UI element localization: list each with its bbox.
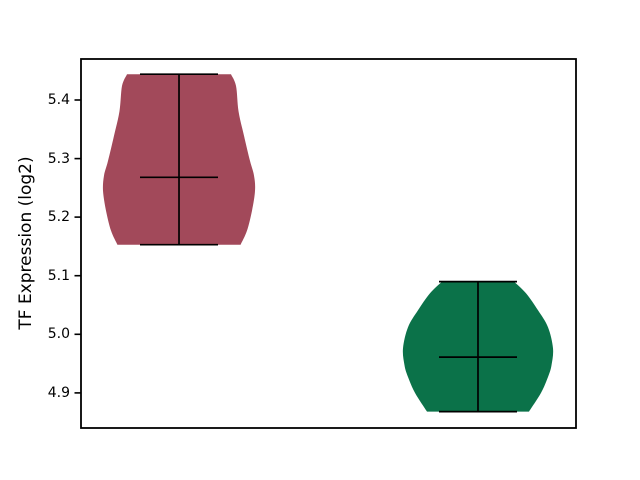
y-tick-label: 4.9 [48,386,70,400]
violin-plot-canvas [0,0,640,480]
y-tick-label: 5.4 [48,93,70,107]
y-axis-label: TF Expression (log2) [16,156,36,329]
y-tick-label: 5.1 [48,269,70,283]
y-tick-label: 5.2 [48,210,70,224]
y-tick-label: 5.0 [48,327,70,341]
figure: TF Expression (log2) 5.45.35.25.15.04.9 [0,0,640,480]
y-tick-label: 5.3 [48,152,70,166]
